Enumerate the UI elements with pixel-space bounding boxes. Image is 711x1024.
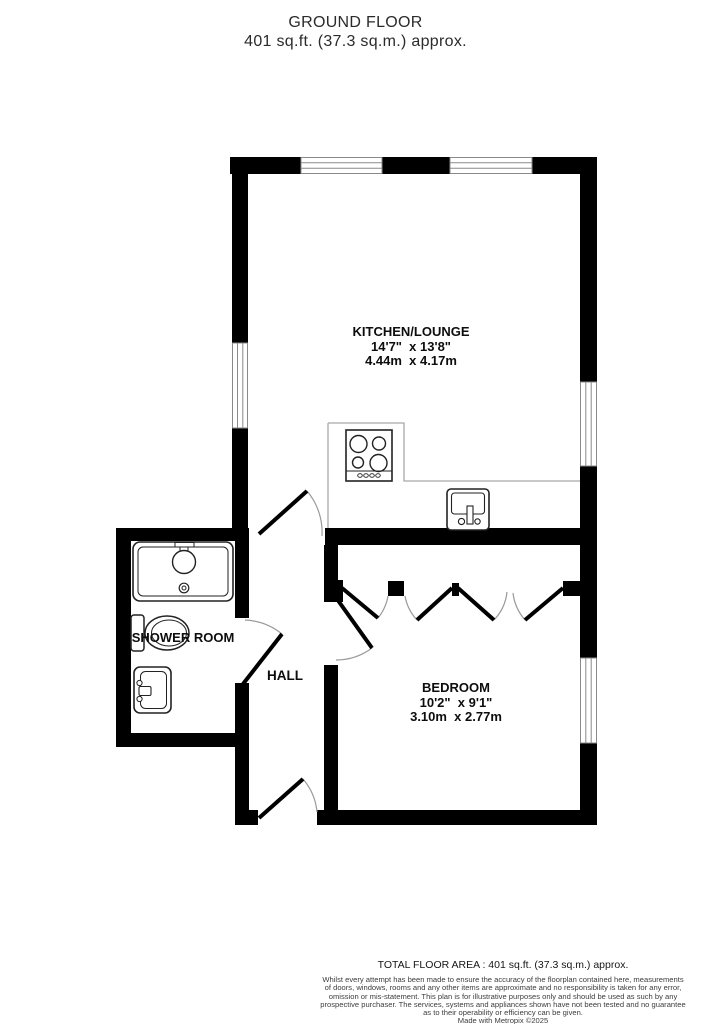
wall-top xyxy=(230,157,597,174)
room-name: BEDROOM xyxy=(356,681,556,696)
walls xyxy=(116,157,597,825)
window-top-left xyxy=(301,158,382,174)
wall-bottom-right xyxy=(317,810,597,825)
door-kitchen xyxy=(259,491,322,536)
window-left xyxy=(233,343,248,428)
room-name: SHOWER ROOM xyxy=(83,631,283,646)
kitchen-lounge-label: KITCHEN/LOUNGE 14'7" x 13'8" 4.44m x 4.1… xyxy=(311,325,511,369)
disclaimer-text: Whilst every attempt has been made to en… xyxy=(313,976,693,1017)
floorplan-page: GROUND FLOOR 401 sq.ft. (37.3 sq.m.) app… xyxy=(0,0,711,1024)
room-dim-metric: 3.10m x 2.77m xyxy=(356,710,556,725)
windows xyxy=(233,158,597,744)
window-right-bedroom xyxy=(581,658,597,743)
wall-shower-top xyxy=(116,528,249,541)
window-top-right xyxy=(450,158,532,174)
wall-stub-wardrobe-left xyxy=(324,580,343,602)
wall-stub-wardrobe-mid xyxy=(388,581,404,596)
plan-title-line2: 401 sq.ft. (37.3 sq.m.) approx. xyxy=(0,32,711,51)
room-dim-metric: 4.44m x 4.17m xyxy=(311,354,511,369)
metropix-credit: Made with Metropix ©2025 xyxy=(313,1017,693,1024)
wall-stub-wardrobe-right xyxy=(563,581,580,596)
kitchen-sink-icon xyxy=(447,489,489,530)
window-right-kitchen xyxy=(581,382,597,466)
door-entry xyxy=(259,779,317,818)
basin-icon xyxy=(134,667,171,713)
room-name: HALL xyxy=(235,669,335,684)
shower-icon xyxy=(133,542,233,601)
wall-shower-hall-lower xyxy=(235,683,249,825)
wall-bottom-left xyxy=(235,810,258,825)
total-floor-area: TOTAL FLOOR AREA : 401 sq.ft. (37.3 sq.m… xyxy=(313,959,693,971)
hall-label: HALL xyxy=(235,669,335,684)
plan-title-line1: GROUND FLOOR xyxy=(0,13,711,32)
plan-title: GROUND FLOOR 401 sq.ft. (37.3 sq.m.) app… xyxy=(0,13,711,51)
wall-shower-hall-upper xyxy=(235,528,249,618)
room-name: KITCHEN/LOUNGE xyxy=(311,325,511,340)
wall-shower-bottom xyxy=(116,733,249,747)
plan-footer: TOTAL FLOOR AREA : 401 sq.ft. (37.3 sq.m… xyxy=(313,959,693,1024)
stove-icon xyxy=(346,430,392,481)
bedroom-label: BEDROOM 10'2" x 9'1" 3.10m x 2.77m xyxy=(356,681,556,725)
wall-hall-bedroom-lower xyxy=(324,665,338,825)
room-dim-imperial: 10'2" x 9'1" xyxy=(356,696,556,711)
shower-room-label: SHOWER ROOM xyxy=(83,631,283,646)
floorplan-svg xyxy=(0,0,711,1024)
room-dim-imperial: 14'7" x 13'8" xyxy=(311,340,511,355)
